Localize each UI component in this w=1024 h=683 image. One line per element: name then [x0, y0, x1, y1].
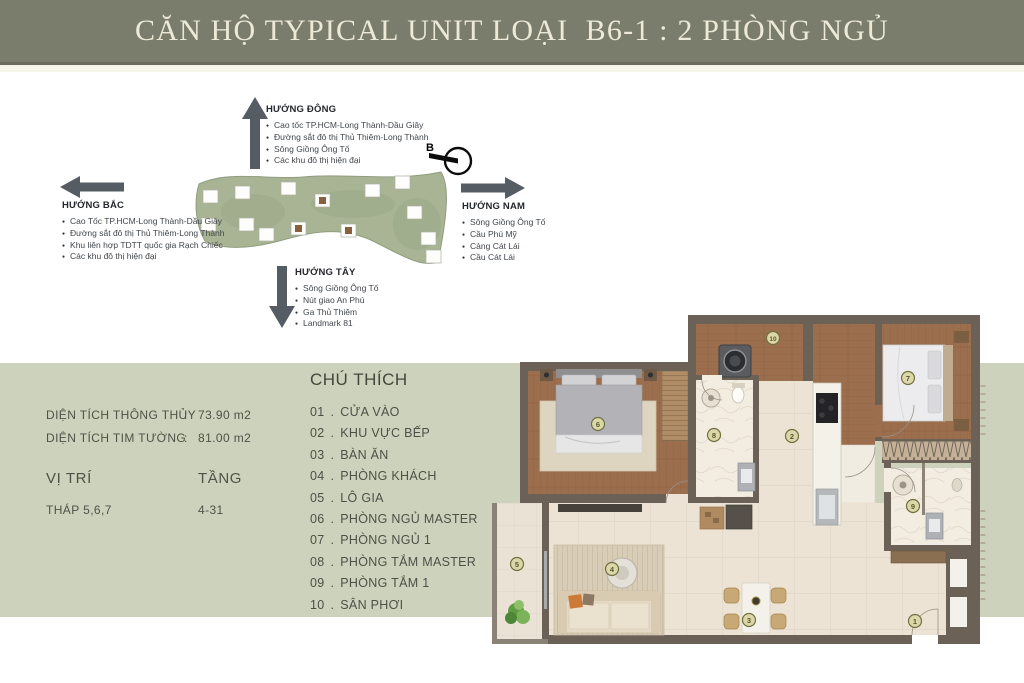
spec-label: DIỆN TÍCH THÔNG THỦY: [46, 408, 196, 422]
list-item: Cảng Cát Lái: [462, 241, 612, 253]
legend-item: 10.SÂN PHƠI: [310, 595, 478, 616]
legend-item: 08.PHÒNG TẮM MASTER: [310, 552, 478, 573]
orange-pillow: [568, 594, 583, 609]
cooktop: [816, 393, 838, 423]
legend-sep: .: [331, 573, 335, 594]
direction-east-title: HƯỚNG ĐÔNG: [266, 104, 476, 115]
direction-west-title: HƯỚNG TÂY: [295, 267, 445, 278]
legend-sep: .: [331, 530, 335, 551]
svg-text:1: 1: [913, 617, 917, 626]
building-block: [421, 232, 436, 245]
arrow-down-icon: [269, 266, 295, 328]
legend-sep: .: [331, 402, 335, 423]
direction-north: HƯỚNG BẮC Cao Tốc TP.HCM-Long Thành-Dầu …: [62, 200, 247, 263]
spec-row-gross-area: DIỆN TÍCH TIM TƯỜNG: [46, 431, 186, 445]
marker-3: 3: [743, 614, 756, 627]
legend-label: CỬA VÀO: [340, 402, 399, 423]
svg-text:3: 3: [747, 616, 751, 625]
building-block: [235, 186, 250, 199]
building-block: [281, 182, 296, 195]
direction-north-list: Cao Tốc TP.HCM-Long Thành-Dầu Giây Đường…: [62, 216, 247, 263]
svg-text:8: 8: [712, 431, 716, 440]
legend-label: KHU VỰC BẾP: [340, 423, 430, 444]
list-item: Sông Giồng Ông Tố: [462, 217, 612, 229]
legend-label: PHÒNG NGỦ 1: [340, 530, 431, 551]
marker-2: 2: [786, 430, 799, 443]
legend-title: CHÚ THÍCH: [310, 370, 408, 390]
svg-text:9: 9: [911, 502, 915, 511]
kitchen-counter: [813, 383, 841, 525]
legend-label: LÔ GIA: [340, 488, 383, 509]
arrow-right-icon: [461, 177, 525, 199]
loggia-slider: [544, 551, 547, 609]
door-mat: [700, 507, 724, 529]
svg-text:6: 6: [596, 420, 600, 429]
legend-num: 01: [310, 402, 325, 423]
legend-label: PHÒNG TẮM MASTER: [340, 552, 476, 573]
legend-num: 06: [310, 509, 325, 530]
page-title: CĂN HỘ TYPICAL UNIT LOẠI B6-1 : 2 PHÒNG …: [135, 14, 889, 48]
legend-item: 06.PHÒNG NGỦ MASTER: [310, 509, 478, 530]
legend-label: PHÒNG TẮM 1: [340, 573, 429, 594]
marker-4: 4: [606, 563, 619, 576]
direction-south: HƯỚNG NAM Sông Giồng Ông Tố Cầu Phú Mỹ C…: [462, 201, 612, 264]
building-block: [407, 206, 422, 219]
legend-num: 07: [310, 530, 325, 551]
legend-label: PHÒNG KHÁCH: [340, 466, 436, 487]
marker-9: 9: [907, 500, 920, 513]
marker-10: 10: [767, 332, 780, 345]
svg-text:2: 2: [790, 432, 794, 441]
spec-value-net-area: 73.90 m2: [198, 408, 251, 422]
corridor-floor: [841, 383, 875, 445]
list-item: Landmark 81: [295, 318, 445, 330]
legend-num: 10: [310, 595, 325, 616]
legend-item: 01.CỬA VÀO: [310, 402, 478, 423]
marker-1: 1: [909, 615, 922, 628]
direction-north-title: HƯỚNG BẮC: [62, 200, 247, 211]
floor-plan: 1 2 3 4 5 6 7 8 9 10: [470, 305, 1020, 655]
legend-item: 09.PHÒNG TẮM 1: [310, 573, 478, 594]
list-item: Nút giao An Phú: [295, 295, 445, 307]
svg-text:10: 10: [769, 336, 777, 343]
legend-item: 07.PHÒNG NGỦ 1: [310, 530, 478, 551]
legend-num: 03: [310, 445, 325, 466]
legend-sep: .: [331, 445, 335, 466]
legend-item: 04.PHÒNG KHÁCH: [310, 466, 478, 487]
list-item: Đường sắt đô thị Thủ Thiêm-Long Thành: [62, 228, 247, 240]
spec-row-net-area: DIỆN TÍCH THÔNG THỦY: [46, 408, 196, 422]
legend-list: 01.CỬA VÀO 02.KHU VỰC BẾP 03.BÀN ĂN 04.P…: [310, 402, 478, 616]
building-block: [426, 250, 441, 263]
spec-value-gross-area: 81.00 m2: [198, 431, 251, 445]
list-item: Cao Tốc TP.HCM-Long Thành-Dầu Giây: [62, 216, 247, 228]
direction-south-title: HƯỚNG NAM: [462, 201, 612, 212]
master-wardrobe: [662, 371, 688, 441]
list-item: Khu liên hợp TDTT quốc gia Rạch Chiếc: [62, 240, 247, 252]
marker-5: 5: [511, 558, 524, 571]
entry-closet: [950, 559, 967, 587]
legend-num: 02: [310, 423, 325, 444]
living-furniture: [554, 545, 664, 635]
building-block: [259, 228, 274, 241]
location-label: VỊ TRÍ: [46, 470, 92, 487]
legend-num: 05: [310, 488, 325, 509]
legend-num: 08: [310, 552, 325, 573]
spec-separator: :: [184, 408, 188, 422]
spec-label: DIỆN TÍCH TIM TƯỜNG: [46, 431, 186, 445]
list-item: Cao tốc TP.HCM-Long Thành-Dầu Giây: [266, 120, 476, 132]
list-item: Cầu Cát Lái: [462, 252, 612, 264]
spec-separator: :: [184, 431, 188, 445]
legend-num: 04: [310, 466, 325, 487]
legend-label: SÂN PHƠI: [340, 595, 403, 616]
direction-west: HƯỚNG TÂY Sông Giồng Ông Tố Nút giao An …: [295, 267, 445, 330]
compass-label: B: [426, 142, 434, 154]
legend-sep: .: [331, 552, 335, 573]
list-item: Cầu Phú Mỹ: [462, 229, 612, 241]
legend-sep: .: [331, 488, 335, 509]
entry-console: [891, 551, 946, 563]
legend-num: 09: [310, 573, 325, 594]
direction-west-list: Sông Giồng Ông Tố Nút giao An Phú Ga Thủ…: [295, 283, 445, 330]
legend-sep: .: [331, 509, 335, 530]
legend-item: 03.BÀN ĂN: [310, 445, 478, 466]
legend-sep: .: [331, 595, 335, 616]
marker-7: 7: [902, 372, 915, 385]
marker-8: 8: [708, 429, 721, 442]
building-block: [365, 184, 380, 197]
header-bar: CĂN HỘ TYPICAL UNIT LOẠI B6-1 : 2 PHÒNG …: [0, 0, 1024, 62]
legend-sep: .: [331, 423, 335, 444]
arrow-up-icon: [242, 97, 268, 169]
legend-sep: .: [331, 466, 335, 487]
hall-cabinet: [726, 505, 752, 529]
washer: [719, 345, 751, 377]
list-item: Ga Thủ Thiêm: [295, 307, 445, 319]
floor-value: 4-31: [198, 503, 224, 517]
list-item: Các khu đô thị hiện đại: [62, 251, 247, 263]
legend-item: 05.LÔ GIA: [310, 488, 478, 509]
legend-item: 02.KHU VỰC BẾP: [310, 423, 478, 444]
arrow-left-icon: [60, 176, 124, 198]
entry-closet: [950, 597, 967, 627]
location-value: THÁP 5,6,7: [46, 503, 112, 517]
building-block: [395, 176, 410, 189]
list-item: Sông Giồng Ông Tố: [295, 283, 445, 295]
loggia-rail: [492, 503, 497, 643]
header-accent-strip: [0, 65, 1024, 72]
brochure-page: CĂN HỘ TYPICAL UNIT LOẠI B6-1 : 2 PHÒNG …: [0, 0, 1024, 683]
legend-label: PHÒNG NGỦ MASTER: [340, 509, 477, 530]
entry-door-gap: [912, 635, 938, 644]
floor-label: TẦNG: [198, 470, 242, 487]
legend-label: BÀN ĂN: [340, 445, 388, 466]
bedroom1-wardrobe: [882, 441, 971, 460]
marker-6: 6: [592, 418, 605, 431]
svg-text:5: 5: [515, 560, 519, 569]
svg-text:7: 7: [906, 374, 910, 383]
tv-console: [558, 504, 642, 512]
direction-south-list: Sông Giồng Ông Tố Cầu Phú Mỹ Cảng Cát Lá…: [462, 217, 612, 264]
